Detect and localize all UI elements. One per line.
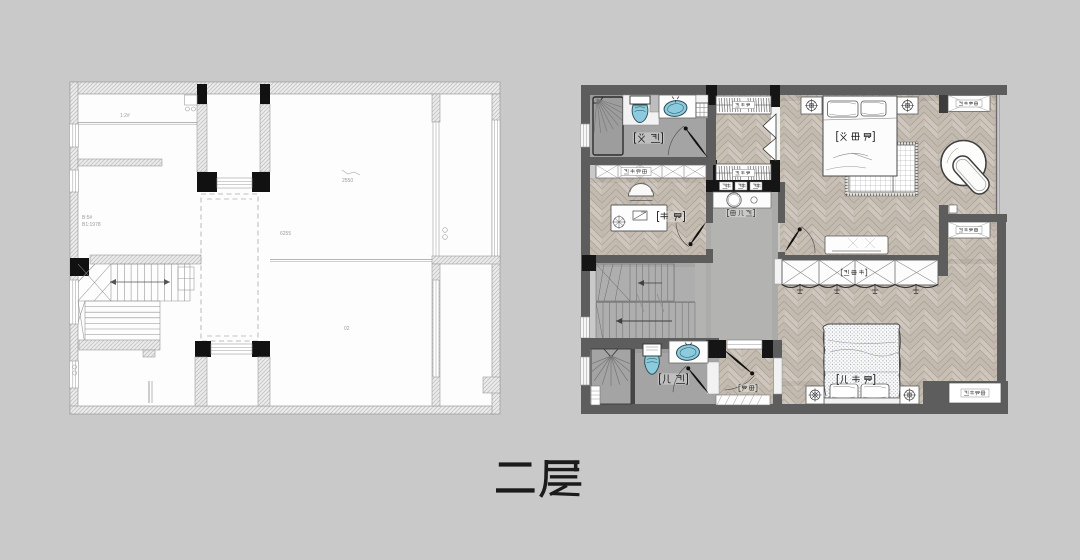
svg-text:B1:1978: B1:1978 bbox=[82, 222, 101, 228]
svg-text:B:5#: B:5# bbox=[82, 215, 93, 221]
svg-text:02: 02 bbox=[344, 326, 350, 332]
svg-text:6255: 6255 bbox=[280, 231, 291, 237]
svg-text:1:2#: 1:2# bbox=[120, 113, 130, 119]
svg-text:2550: 2550 bbox=[342, 178, 353, 184]
